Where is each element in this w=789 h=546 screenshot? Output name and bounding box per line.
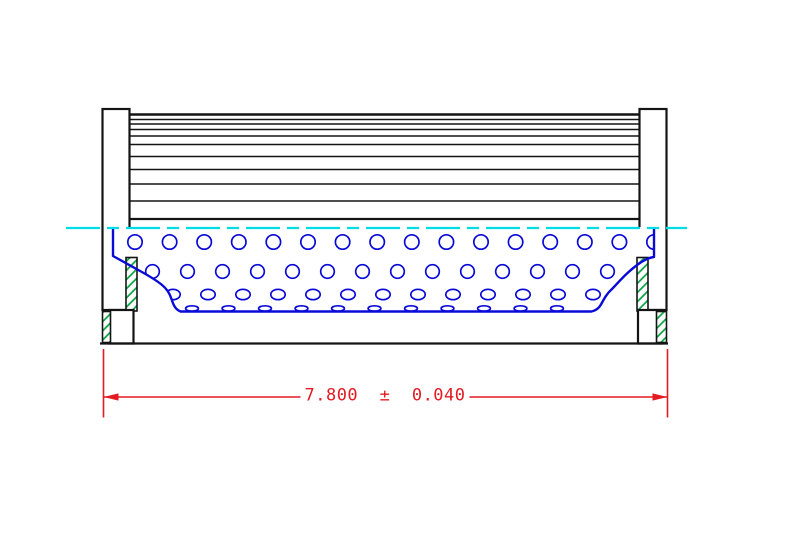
perforation-hole	[612, 235, 626, 249]
dimension-line-group	[104, 349, 668, 418]
perforation-hole	[461, 265, 475, 279]
perforation-hole	[376, 289, 390, 299]
drawing-stage: 7.800 ± 0.040	[0, 0, 789, 546]
perforation-hole	[496, 265, 510, 279]
perforation-hole	[201, 289, 215, 299]
perforation-hole	[586, 289, 600, 299]
perforation-hole	[356, 265, 370, 279]
left-cap-bottom-block	[110, 310, 134, 344]
perforation-hole	[411, 289, 425, 299]
perforation-hole	[197, 235, 211, 249]
pleated-media	[130, 115, 641, 220]
perforation-hole	[543, 235, 557, 249]
perforation-hole	[508, 235, 522, 249]
perforation-hole	[481, 289, 495, 299]
right-cap-bottom-hatch	[657, 312, 667, 343]
perforation-hole	[391, 265, 405, 279]
right-cap-hatch-strip	[637, 258, 648, 312]
perforation-hole	[162, 235, 176, 249]
perforation-hole	[439, 235, 453, 249]
perforation-hole	[601, 265, 615, 279]
perforation-hole	[551, 289, 565, 299]
arrowhead-left	[104, 393, 119, 400]
perforation-hole	[474, 235, 488, 249]
left-cap-bottom-hatch	[103, 312, 111, 343]
perforation-hole	[306, 289, 320, 299]
perforation-hole	[251, 265, 265, 279]
arrowhead-right	[653, 393, 668, 400]
perforation-hole	[232, 235, 246, 249]
perforation-hole	[405, 235, 419, 249]
perforation-hole	[271, 289, 285, 299]
perforation-hole	[236, 289, 250, 299]
perforation-hole	[446, 289, 460, 299]
perforation-hole	[335, 235, 349, 249]
perforation-hole	[128, 235, 142, 249]
perforation-hole	[286, 265, 300, 279]
perforation-hole	[426, 265, 440, 279]
perforation-hole	[301, 235, 315, 249]
perforation-hole	[266, 235, 280, 249]
perforation-hole	[321, 265, 335, 279]
perforation-hole	[216, 265, 230, 279]
perforation-hole	[566, 265, 580, 279]
perforation-hole	[370, 235, 384, 249]
technical-drawing-svg	[0, 0, 789, 546]
perforation-hole	[516, 289, 530, 299]
perforation-hole	[531, 265, 545, 279]
dimension-text: 7.800 ± 0.040	[300, 388, 469, 405]
perforation-hole	[341, 289, 355, 299]
perforation-hole	[578, 235, 592, 249]
perforation-hole	[181, 265, 195, 279]
